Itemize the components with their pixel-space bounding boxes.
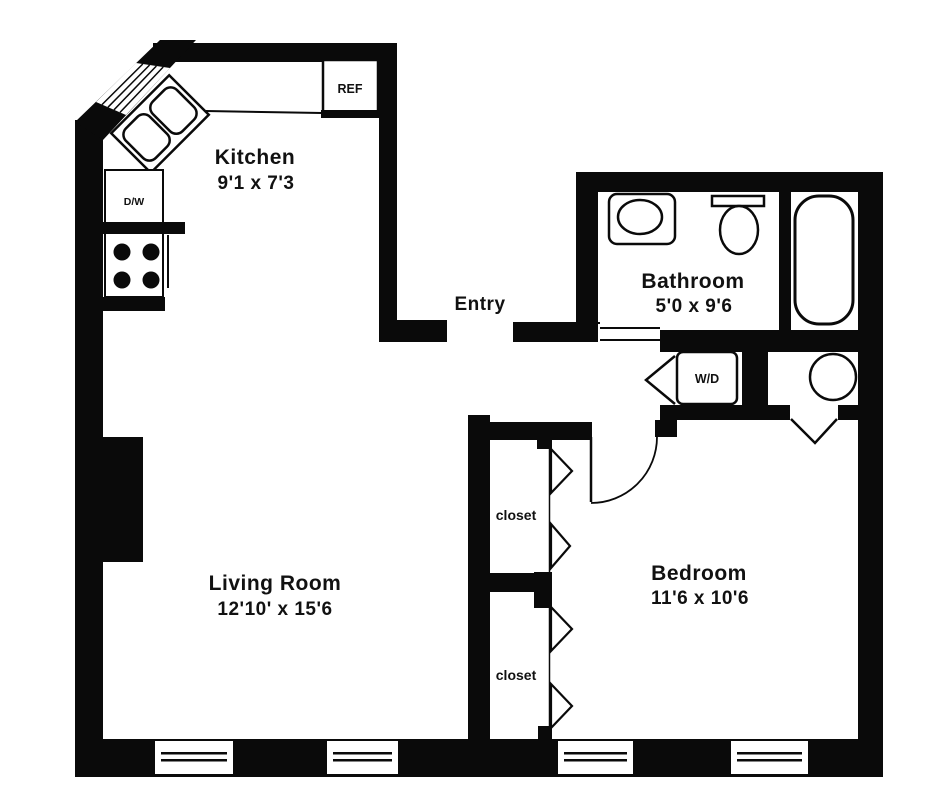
living-room-dims: 12'10' x 15'6: [217, 599, 332, 620]
bathtub: [795, 196, 853, 324]
wall-bathroom-top: [576, 172, 883, 192]
bathroom-label: Bathroom: [641, 270, 744, 293]
window-sash-line: [161, 752, 227, 755]
bedroom-label: Bedroom: [651, 562, 747, 585]
toilet: [712, 196, 764, 254]
counter-edge: [206, 111, 322, 113]
window-living-room-2: [327, 741, 398, 774]
floor-plan-drawing: REF D/W: [0, 0, 935, 800]
walls: [75, 40, 883, 777]
kitchen-dims: 9'1 x 7'3: [218, 173, 295, 194]
dishwasher-label: D/W: [124, 196, 145, 208]
closet-lower-label: closet: [496, 667, 537, 683]
wall-left-exterior: [75, 120, 103, 777]
window-living-room-1: [155, 741, 233, 774]
bedroom-door: [591, 437, 657, 503]
entry-label: Entry: [454, 294, 505, 315]
window-frame: [731, 741, 808, 774]
bedroom-label-group: Bedroom 11'6 x 10'6: [651, 562, 749, 609]
toilet-tank: [712, 196, 764, 206]
window-sash-line: [333, 752, 392, 755]
wall-bathroom-bottom: [660, 330, 860, 352]
kitchen-label-group: Kitchen 9'1 x 7'3: [215, 146, 296, 194]
floor-plan: REF D/W: [0, 0, 935, 800]
alcove-basin: [810, 354, 856, 400]
stove: [105, 233, 168, 297]
living-room-label: Living Room: [209, 572, 342, 595]
living-room-label-group: Living Room 12'10' x 15'6: [209, 572, 342, 620]
window-sash-line: [737, 759, 802, 762]
wall-right-exterior: [858, 172, 883, 777]
wall-alcove-stub-right: [838, 405, 858, 420]
wall-entry-south-left: [379, 320, 447, 342]
wall-bathroom-left: [576, 172, 598, 342]
bathroom-door-threshold: [598, 324, 660, 346]
alcove-door: [791, 419, 837, 443]
wall-alcove-stub-left: [768, 405, 790, 420]
burner: [114, 272, 131, 289]
burner: [143, 244, 160, 261]
window-bedroom-1: [558, 741, 633, 774]
wall-kitchen-right: [379, 43, 397, 322]
washer-dryer-label: W/D: [695, 372, 719, 386]
bedroom-dims: 11'6 x 10'6: [651, 588, 749, 609]
burner: [143, 272, 160, 289]
wall-closet-top: [468, 422, 592, 440]
burner: [114, 244, 131, 261]
window-sash-line: [737, 752, 802, 755]
wall-wd-bottom: [660, 405, 768, 420]
bathroom-sink: [609, 194, 675, 244]
window-sash-line: [564, 759, 627, 762]
kitchen-label: Kitchen: [215, 146, 296, 169]
closet-lower-door-panel: [551, 607, 572, 651]
window-frame: [558, 741, 633, 774]
wall-closet-left: [468, 415, 490, 739]
bathroom-label-group: Bathroom 5'0 x 9'6: [641, 270, 744, 317]
counter-end-cap: [103, 297, 165, 311]
wall-bedroom-door-stub: [655, 420, 677, 437]
closet-upper-door-panel: [551, 449, 572, 493]
wall-wd-right: [742, 350, 768, 407]
closet-lower-door-panel: [551, 684, 572, 728]
wall-left-protrusion: [103, 437, 143, 562]
window-sash-line: [564, 752, 627, 755]
closet-doors: [550, 440, 573, 739]
bedroom-door-swing-arc: [591, 437, 657, 503]
closet-upper-label: closet: [496, 507, 537, 523]
bathroom-dims: 5'0 x 9'6: [656, 296, 733, 317]
window-frame: [327, 741, 398, 774]
window-bedroom-2: [731, 741, 808, 774]
closet-upper-door-panel: [551, 524, 570, 568]
window-frame: [155, 741, 233, 774]
wd-door: [646, 356, 675, 404]
window-sash-line: [333, 759, 392, 762]
refrigerator-label: REF: [338, 82, 363, 96]
window-sash-line: [161, 759, 227, 762]
bathroom-sink-basin: [618, 200, 662, 234]
wall-tub-partition: [779, 192, 791, 330]
toilet-bowl: [720, 206, 758, 254]
refrigerator-base: [321, 110, 380, 118]
